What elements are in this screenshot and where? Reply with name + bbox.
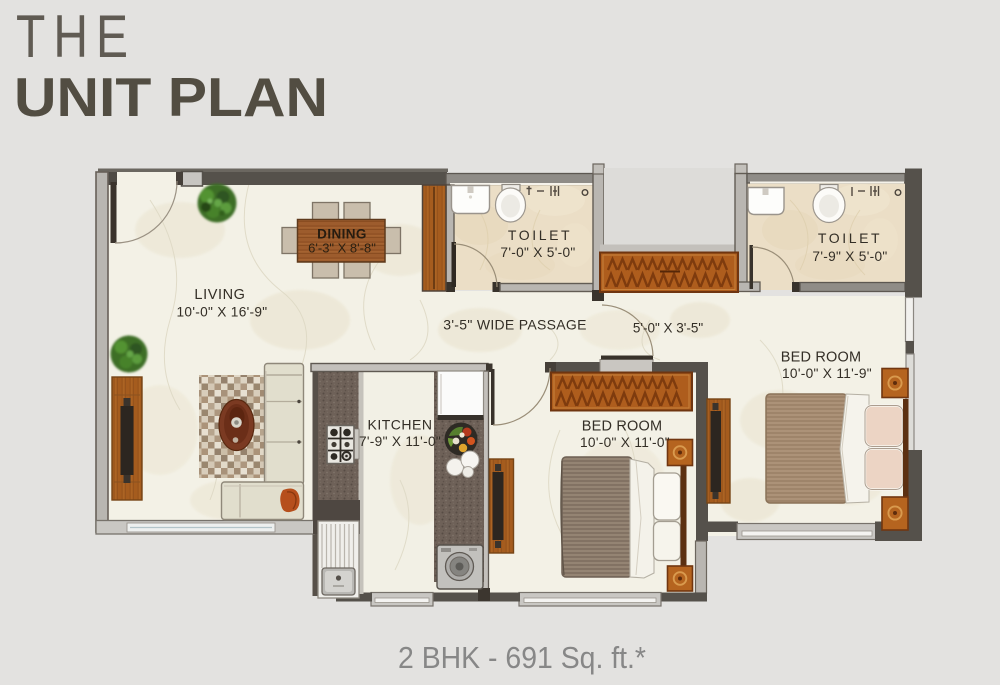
svg-text:7'-9" X 11'-0": 7'-9" X 11'-0" xyxy=(359,434,441,449)
svg-text:10'-0" X 11'-0": 10'-0" X 11'-0" xyxy=(580,435,670,450)
svg-text:BED ROOM: BED ROOM xyxy=(781,350,862,366)
svg-text:TOILET: TOILET xyxy=(508,227,572,243)
svg-text:DINING: DINING xyxy=(317,227,367,242)
svg-text:6'-3" X 8'-8": 6'-3" X 8'-8" xyxy=(308,241,376,256)
svg-text:5'-0" X 3'-5": 5'-0" X 3'-5" xyxy=(633,321,703,336)
svg-text:BED ROOM: BED ROOM xyxy=(582,419,663,435)
svg-text:LIVING: LIVING xyxy=(194,287,245,303)
svg-text:7'-9" X 5'-0": 7'-9" X 5'-0" xyxy=(812,249,887,264)
svg-text:KITCHEN: KITCHEN xyxy=(368,417,433,433)
svg-text:2 BHK - 691 Sq. ft.*: 2 BHK - 691 Sq. ft.* xyxy=(398,640,646,675)
svg-text:10'-0" X 11'-9": 10'-0" X 11'-9" xyxy=(782,366,872,381)
svg-text:7'-0" X 5'-0": 7'-0" X 5'-0" xyxy=(500,245,575,260)
svg-text:THE: THE xyxy=(16,3,136,70)
svg-text:TOILET: TOILET xyxy=(818,230,882,246)
svg-text:10'-0" X 16'-9": 10'-0" X 16'-9" xyxy=(177,305,268,320)
svg-text:UNIT PLAN: UNIT PLAN xyxy=(14,66,328,128)
svg-text:3'-5" WIDE PASSAGE: 3'-5" WIDE PASSAGE xyxy=(443,317,587,333)
